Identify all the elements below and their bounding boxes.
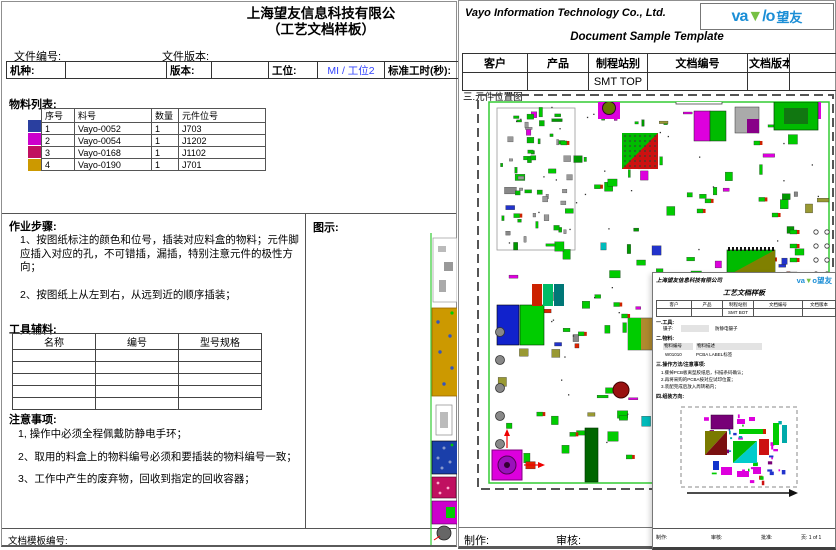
std-time-label: 标准工时(秒): [385,62,468,79]
logo-text-o: o [766,8,775,26]
tools-header: 型号规格 [179,334,262,350]
work-instruction-page: 上海望友信息科技有限公 （工艺文档样板） 文件编号: 文件版本: 机种: 版本:… [1,1,457,547]
spec-row-table: 机种: 版本: 工位: MI / 工位2 标准工时(秒): [6,61,468,79]
ov-tool-value: 防静电镊子 [715,326,738,332]
ov-doc-title: 工艺文档样板 [653,288,835,298]
bom-color-swatch [28,133,41,145]
ov-info-value-cell [803,309,836,317]
bom-header: 序号 [42,109,75,123]
version-value-cell [212,62,269,79]
tools-header: 编号 [96,334,179,350]
table-row [13,362,262,374]
bom-header: 料号 [75,109,152,123]
logo-cn-text: 望友 [776,7,802,26]
info-header: 文档版本 [748,54,790,73]
machine-value-cell [66,62,167,79]
ov-material-label: 二.物料: [656,335,674,342]
step-item: 1、按图纸标注的颜色和位号，插装对应料盒的物料；元件脚应插入对应的孔，不可错插，… [20,234,300,275]
table-row [13,350,262,362]
ov-tools-label: 一.工具: [656,319,674,326]
ov-method-item: 2.再将采购的PCBA按对应试印位置； [661,376,746,383]
step-item: 2、按图纸上从左到右，从远到近的顺序插装； [20,289,300,303]
ov-info-header: 文档版本 [803,301,836,309]
info-value-cell [528,73,589,91]
info-header: 客户 [463,54,528,73]
template-number-label: 文档模板编号: [8,533,68,547]
ov-logo-va: va [797,276,805,285]
ov-maker-label: 制作: [656,534,667,541]
ov-footer: 制作: 审核: 批准: 页: 1 of 1 [653,528,835,529]
illustration-label: 图示: [313,219,339,235]
ov-info-value-cell: SMT BOT [723,309,754,317]
doc-title: Document Sample Template [459,31,835,43]
note-item: 3、工作中产生的废弃物，回收到指定的回收容器； [18,473,302,487]
notes-title: 注意事项: [9,411,57,427]
table-row: 3Vayo-01681J1102 [42,147,266,159]
ov-method-label: 三.操作方法/注意事项: [656,361,705,368]
bom-color-swatch [28,120,41,132]
info-header [790,54,836,73]
ov-mat-header-2: 物料描述 [697,343,715,349]
info-header: 制程站别 [589,54,648,73]
ov-vayo-logo: va▼o望友 [797,275,832,286]
ov-mat-header-cell: 物料描述 [696,343,762,350]
tools-header: 名称 [13,334,96,350]
bom-color-swatch [28,159,41,171]
ov-tool-field [681,325,709,332]
column-divider [305,213,306,529]
bom-color-swatch [28,146,41,158]
ov-tool-name: 镊子: [663,326,673,332]
note-item: 2、取用的料盒上的物料编号必须和要插装的物料编号一致； [18,451,302,465]
logo-text-va: va [732,8,748,26]
document-preview-window[interactable]: 上海望友信息科技有限公司 va▼o望友 工艺文档样板 客户产品制程站别文档编号文… [652,272,836,550]
table-row: 4Vayo-01901J701 [42,159,266,171]
station-label: 工位: [269,62,318,79]
section-label: 三.元件位置图 [463,89,523,103]
ov-company-name: 上海望友信息科技有限公司 [656,276,722,284]
table-row [13,398,262,410]
steps-list: 1、按图纸标注的颜色和位号，插装对应料盒的物料；元件脚应插入对应的孔，不可错插，… [20,234,300,316]
ov-mat-header-cell: 物料编号 [663,343,693,350]
ov-mat-desc: PCBA LABEL标签 [696,352,732,358]
info-value-cell [648,73,748,91]
info-value-cell [748,73,790,91]
ov-info-header: 产品 [692,301,723,309]
info-header: 文档编号 [648,54,748,73]
info-table: 客户产品制程站别文档编号文档版本SMT TOP [462,53,836,91]
mini-board-figure [653,401,835,501]
bom-header: 元件位号 [179,109,266,123]
table-row: 1Vayo-00521J703 [42,123,266,135]
steps-title: 作业步骤: [9,218,57,234]
ov-info-header: 客户 [657,301,692,309]
section-divider [2,213,456,214]
table-row [13,374,262,386]
logo-v-glyph: ▼ [747,8,762,26]
ov-info-value-cell [692,309,723,317]
ov-approver-label: 批准: [761,534,772,541]
company-name-en: Vayo Information Technology Co., Ltd. [465,7,666,19]
ov-checker-label: 审核: [711,534,722,541]
page-subtitle: （工艺文档样板） [187,22,455,38]
version-label: 版本: [167,62,212,79]
footer-divider [2,528,456,529]
ov-page-number: 页: 1 of 1 [801,534,821,541]
ov-logo-cn: 望友 [817,276,832,285]
info-value-cell: SMT TOP [589,73,648,91]
ov-info-value-cell [754,309,803,317]
vayo-logo: va▼/o望友 [700,3,834,30]
bom-table: 序号料号数量元件位号 1Vayo-00521J7032Vayo-00541J12… [41,108,266,171]
machine-label: 机种: [7,62,66,79]
ov-direction-label: 四.组装方向: [656,393,684,400]
tools-table: 名称编号型号规格 [12,333,262,410]
station-value[interactable]: MI / 工位2 [318,62,385,79]
info-value-cell [463,73,528,91]
info-value-cell [790,73,836,91]
ov-method-list: 1.撕掉PCB板离型胶纸后，扫描条码确认；2.再将采购的PCBA按对应试印位置；… [661,369,746,390]
ov-info-header: 制程站别 [723,301,754,309]
ov-method-item: 1.撕掉PCB板离型胶纸后，扫描条码确认； [661,369,746,376]
ov-info-value-cell [657,309,692,317]
table-row [13,386,262,398]
info-header: 产品 [528,54,589,73]
bom-header: 数量 [152,109,179,123]
ov-info-header: 文档编号 [754,301,803,309]
note-item: 1, 操作中必须全程佩戴防静电手环； [18,428,302,442]
document-viewer: 上海望友信息科技有限公 （工艺文档样板） 文件编号: 文件版本: 机种: 版本:… [0,0,836,550]
ov-mat-code: W01010 [665,352,682,357]
ov-mat-header-1: 物料编号 [664,343,682,349]
notes-list: 1, 操作中必须全程佩戴防静电手环；2、取用的料盒上的物料编号必须和要插装的物料… [18,428,302,496]
ov-info-table: 客户产品制程站别文档编号文档版本SMT BOT [656,300,836,317]
maker-label: 制作: [464,532,489,548]
company-title: 上海望友信息科技有限公 [187,6,455,22]
checker-label: 审核: [556,532,581,548]
ov-method-item: 3.装配完成后放入周转箱内； [661,383,746,390]
table-row: 2Vayo-00541J1202 [42,135,266,147]
page-title: 上海望友信息科技有限公 （工艺文档样板） [187,6,455,38]
